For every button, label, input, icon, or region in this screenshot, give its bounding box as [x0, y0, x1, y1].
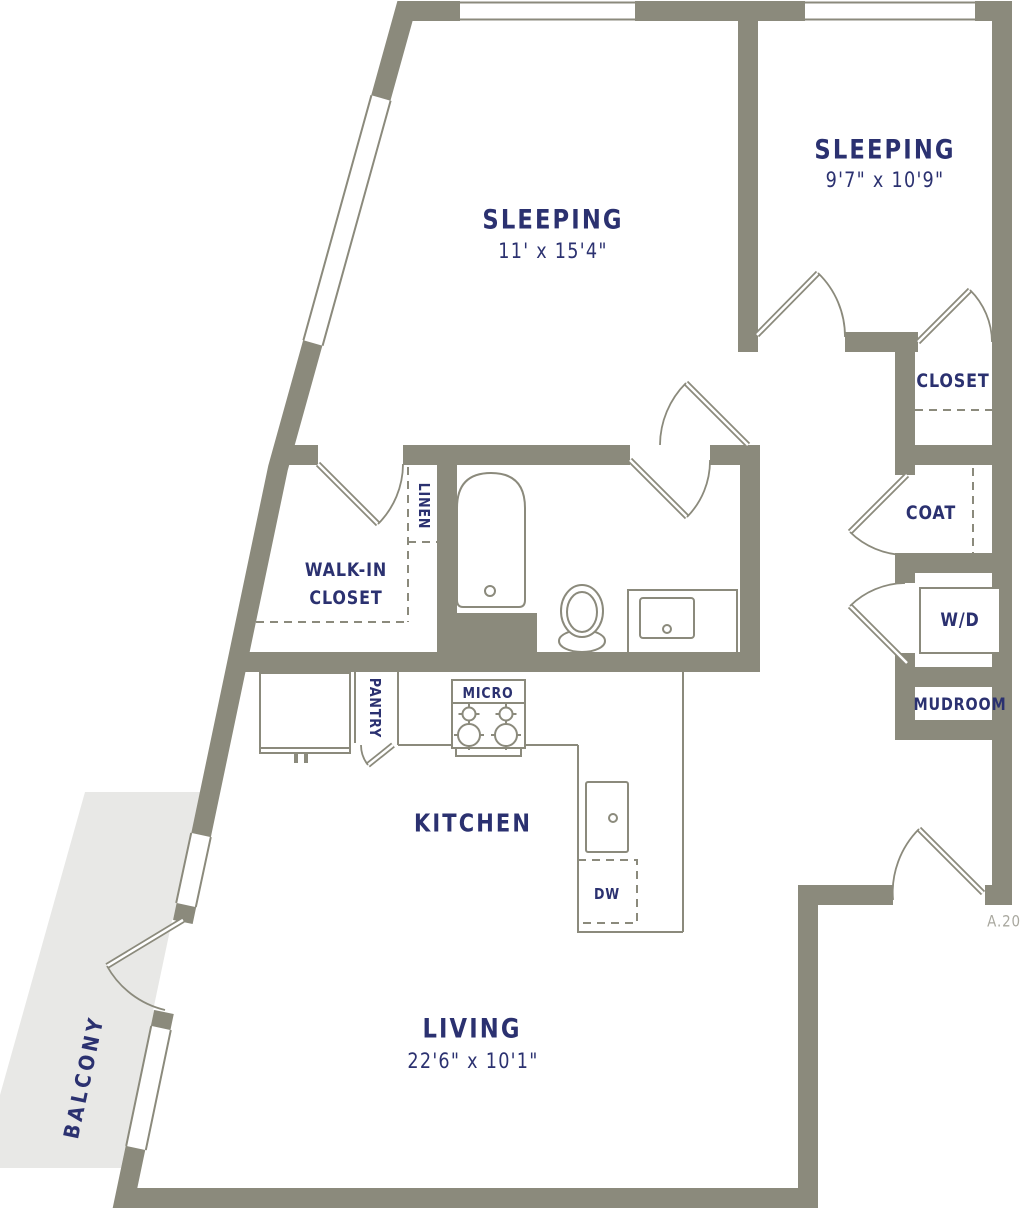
refrigerator: [260, 673, 350, 763]
coat-label: COAT: [906, 502, 956, 524]
sleeping-main-door: [660, 383, 748, 445]
floor-plan: SLEEPING 11' x 15'4" SLEEPING 9'7" x 10'…: [0, 0, 1026, 1228]
pantry-door: [361, 745, 393, 765]
sleeping-main-label: SLEEPING: [482, 205, 623, 236]
linen-label: LINEN: [415, 483, 433, 530]
sleeping-second-label: SLEEPING: [814, 135, 955, 166]
washer-dryer-label: W/D: [940, 609, 979, 631]
pantry-label: PANTRY: [366, 678, 384, 738]
sleeping-second-dims: 9'7" x 10'9": [826, 168, 945, 192]
kitchen-label: KITCHEN: [414, 809, 532, 838]
vanity-sink: [628, 590, 737, 653]
sleeping-main-dims: 11' x 15'4": [498, 239, 607, 263]
kitchen-sink: [586, 782, 628, 852]
sleeping-second-door: [757, 273, 845, 337]
living-dims: 22'6" x 10'1": [407, 1049, 538, 1073]
mudroom-label: MUDROOM: [913, 695, 1006, 715]
toilet: [559, 585, 605, 652]
dishwasher-label: DW: [594, 885, 620, 903]
walkin-closet-door: [318, 464, 403, 524]
closet-label: CLOSET: [916, 370, 989, 392]
walkin-closet-label-line2: CLOSET: [309, 587, 382, 609]
living-label: LIVING: [422, 1014, 521, 1045]
bathroom-door: [630, 460, 710, 517]
sheet-reference: A.20: [987, 912, 1021, 931]
microwave-label: MICRO: [462, 684, 513, 702]
bathtub: [457, 473, 525, 607]
walkin-closet-label-line1: WALK-IN: [305, 559, 387, 581]
